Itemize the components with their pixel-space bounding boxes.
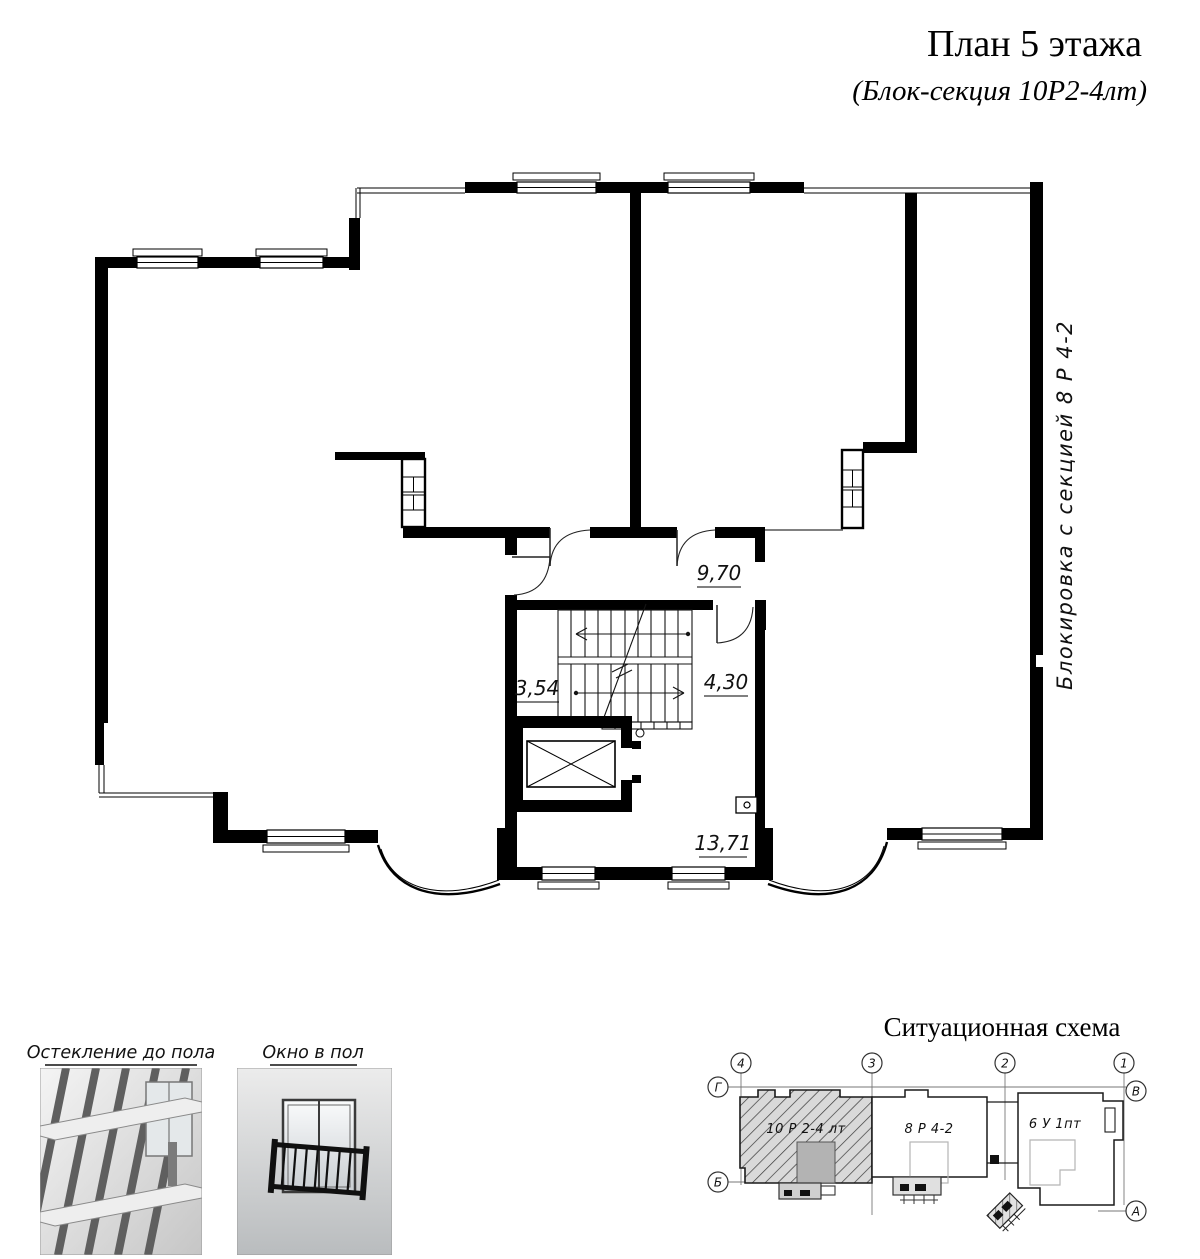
walls [95,182,1043,880]
legend-glazing-image [28,1068,202,1255]
axis-row-a: А [1131,1205,1140,1219]
scheme-block-3-entrance [987,1193,1028,1234]
dim-hall: 9,70 [697,561,742,585]
page-title: План 5 этажа [927,23,1142,65]
stair-break-line [600,604,646,728]
scheme-title: Ситуационная схема [884,1012,1121,1042]
legend: Остекление до пола Окно в пол [27,1043,392,1255]
elevator [512,716,641,812]
dim-stair: 4,30 [704,670,749,694]
windows [133,173,1006,889]
floor-plan: 9,70 3,54 4,30 13,71 [95,173,1043,894]
drawing-sheet: План 5 этажа (Блок-секция 10Р2-4лт) Блок… [0,0,1200,1259]
scheme-block-2-label: 8 Р 4-2 [904,1122,953,1137]
vent-shaft-right [842,450,863,528]
floor-glazing-lines [99,188,1030,797]
page-subtitle: (Блок-секция 10Р2-4лт) [852,75,1147,107]
scheme-block-1-label: 10 Р 2-4 лт [766,1122,845,1137]
situational-scheme: Ситуационная схема 10 Р 2-4 лт [708,1012,1146,1234]
electrical-box-symbol [736,797,757,813]
dim-left: 3,54 [515,676,560,700]
door-arcs [512,528,753,643]
axis-col-3: 3 [868,1057,876,1071]
scheme-block-3-label: 6 У 1пт [1029,1117,1081,1132]
axis-row-v: В [1132,1085,1140,1099]
stair-handrail-post [636,729,644,737]
axis-col-2: 2 [1001,1057,1009,1071]
legend-window-caption: Окно в пол [262,1043,363,1063]
legend-window-image [237,1068,392,1255]
dim-room: 13,71 [694,831,751,855]
axis-col-4: 4 [737,1057,745,1071]
axis-row-b: Б [714,1176,722,1190]
scheme-block-2: 8 Р 4-2 [872,1090,1018,1204]
legend-glazing-caption: Остекление до пола [27,1043,215,1063]
axis-col-1: 1 [1120,1057,1128,1071]
blocking-side-label: Блокировка с секцией 8 Р 4-2 [1053,320,1077,690]
vent-shaft-left [402,459,425,527]
scheme-block-1: 10 Р 2-4 лт [740,1090,872,1199]
